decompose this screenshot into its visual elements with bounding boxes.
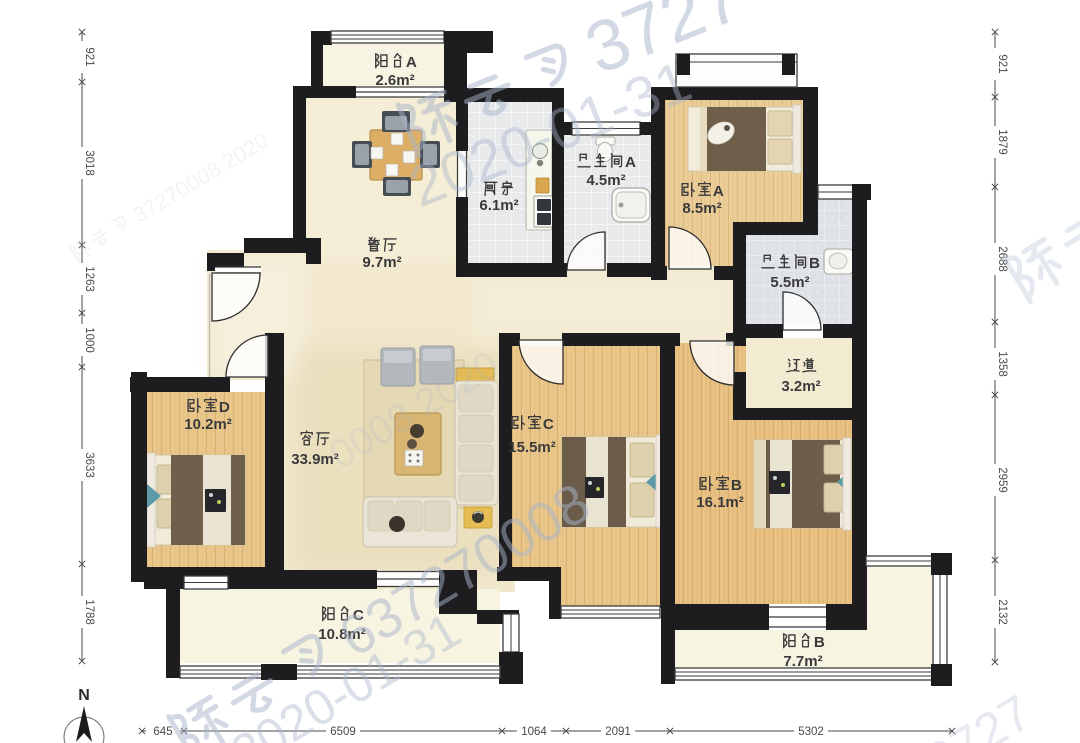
svg-text:A: A — [406, 54, 417, 71]
svg-text:8.5m²: 8.5m² — [682, 200, 721, 217]
svg-text:921: 921 — [83, 47, 95, 66]
svg-text:B: B — [731, 477, 742, 494]
svg-text:5.5m²: 5.5m² — [770, 274, 809, 291]
svg-text:D: D — [219, 399, 230, 416]
svg-text:1263: 1263 — [83, 266, 95, 292]
svg-text:2.6m²: 2.6m² — [375, 72, 414, 89]
svg-text:3018: 3018 — [83, 150, 95, 176]
svg-text:1358: 1358 — [996, 351, 1008, 377]
svg-text:1788: 1788 — [83, 599, 95, 625]
svg-text:4.5m²: 4.5m² — [586, 172, 625, 189]
svg-text:9.7m²: 9.7m² — [362, 254, 401, 271]
svg-text:B: B — [814, 634, 825, 651]
svg-text:921: 921 — [996, 54, 1008, 73]
svg-text:3.2m²: 3.2m² — [781, 378, 820, 395]
svg-text:7.7m²: 7.7m² — [783, 653, 822, 670]
svg-text:2091: 2091 — [605, 726, 631, 738]
svg-text:5302: 5302 — [798, 726, 824, 738]
svg-text:15.5m²: 15.5m² — [508, 439, 556, 456]
svg-text:1879: 1879 — [996, 129, 1008, 155]
svg-text:A: A — [625, 154, 636, 171]
svg-text:16.1m²: 16.1m² — [696, 494, 744, 511]
svg-text:6.1m²: 6.1m² — [479, 197, 518, 214]
svg-text:1064: 1064 — [521, 726, 547, 738]
svg-text:B: B — [809, 255, 820, 272]
svg-text:2132: 2132 — [996, 599, 1008, 625]
svg-text:A: A — [713, 183, 724, 200]
svg-text:645: 645 — [153, 726, 172, 738]
svg-text:10.2m²: 10.2m² — [184, 416, 232, 433]
svg-text:3633: 3633 — [83, 452, 95, 478]
svg-text:1000: 1000 — [83, 327, 95, 353]
svg-text:N: N — [78, 687, 90, 704]
svg-text:2959: 2959 — [996, 467, 1008, 493]
svg-text:C: C — [543, 416, 554, 433]
